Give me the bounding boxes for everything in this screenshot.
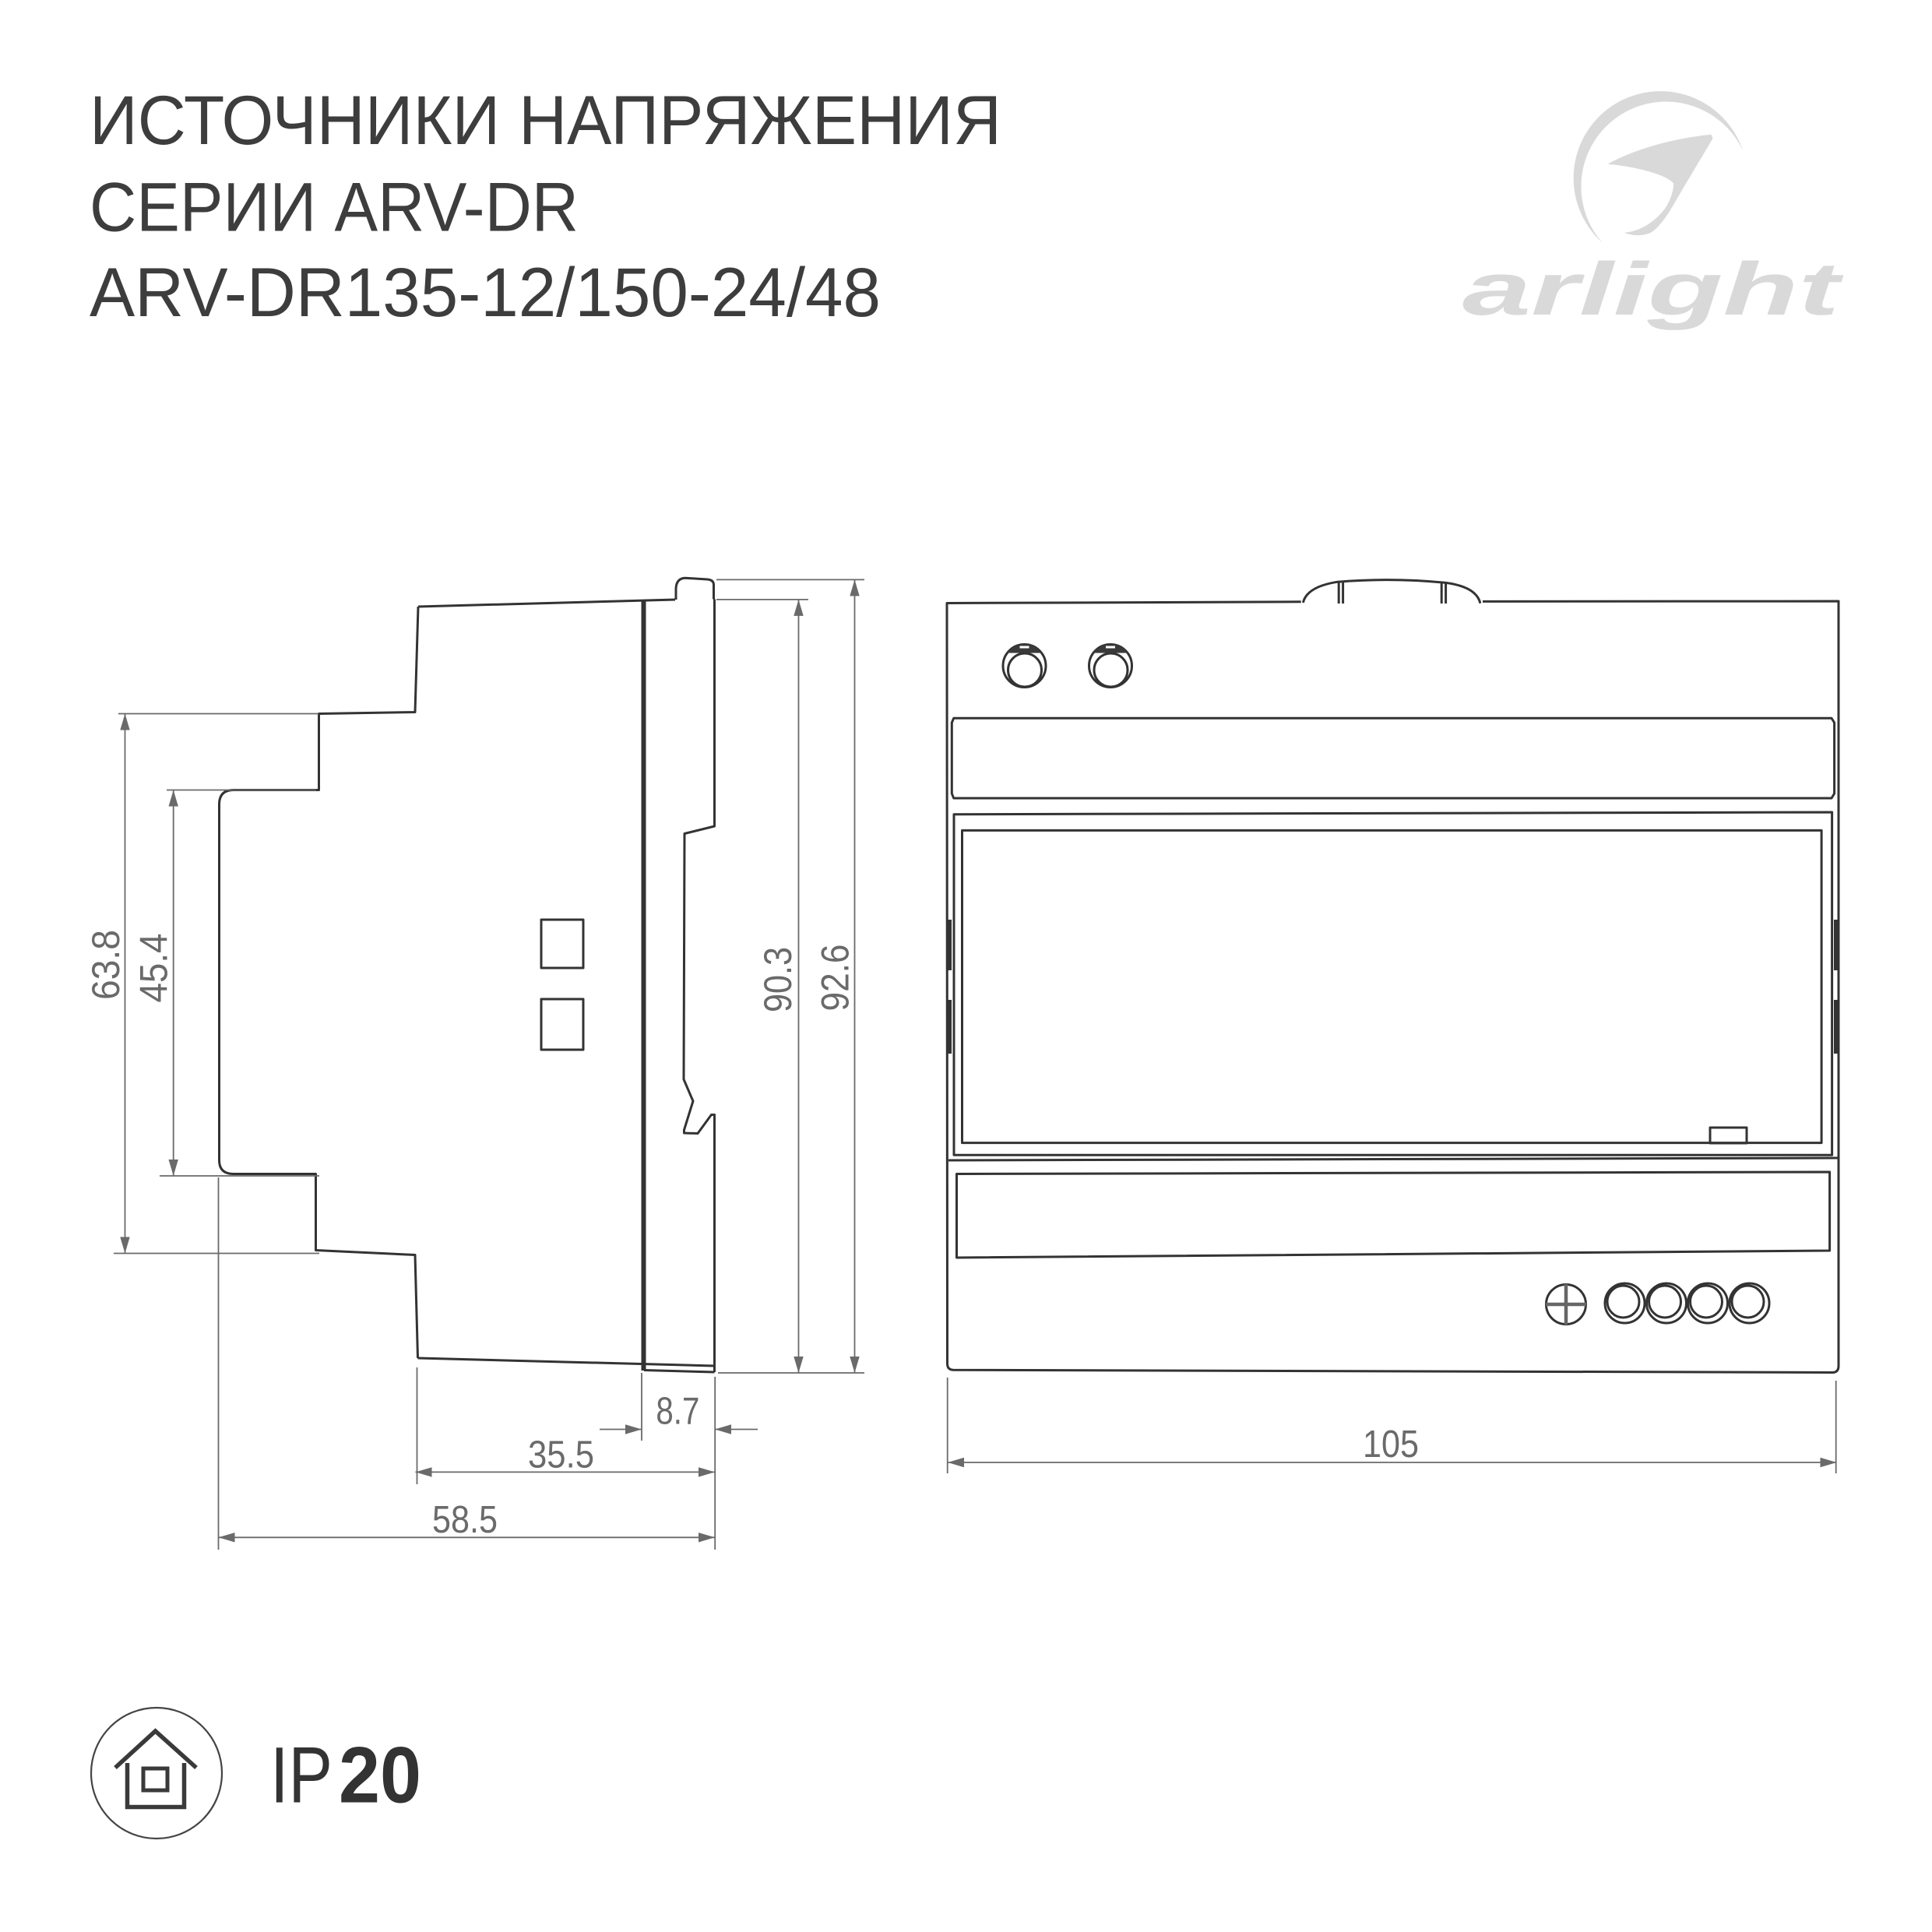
svg-text:92.6: 92.6 — [813, 945, 857, 1012]
svg-text:63.8: 63.8 — [84, 930, 128, 1000]
svg-text:45.4: 45.4 — [132, 934, 176, 1003]
svg-text:ИСТОЧНИКИ НАПРЯЖЕНИЯ: ИСТОЧНИКИ НАПРЯЖЕНИЯ — [90, 81, 1001, 159]
svg-text:20: 20 — [339, 1731, 421, 1820]
svg-text:СЕРИИ ARV-DR: СЕРИИ ARV-DR — [90, 168, 579, 246]
svg-text:105: 105 — [1363, 1423, 1419, 1466]
svg-text:58.5: 58.5 — [432, 1499, 498, 1541]
svg-text:ARV-DR135-12/150-24/48: ARV-DR135-12/150-24/48 — [90, 253, 881, 331]
svg-text:arlight: arlight — [1462, 248, 1845, 331]
svg-text:35.5: 35.5 — [528, 1434, 594, 1476]
svg-text:IP: IP — [270, 1731, 333, 1820]
svg-text:8.7: 8.7 — [656, 1391, 699, 1433]
svg-text:90.3: 90.3 — [756, 947, 800, 1012]
